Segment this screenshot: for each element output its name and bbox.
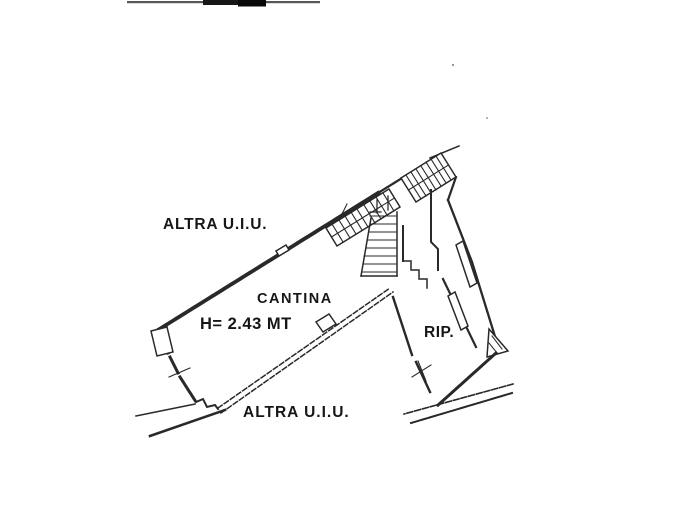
rip-walls <box>393 200 513 423</box>
stairs-upper <box>401 153 456 202</box>
cropped-header-artifact <box>127 0 320 7</box>
scan-specks <box>452 64 488 119</box>
room-label-cantina: CANTINA <box>257 291 333 307</box>
ceiling-height-note: H= 2.43 MT <box>200 315 292 334</box>
floorplan-drawing <box>0 0 692 518</box>
area-label-altra-uiu-top: ALTRA U.I.U. <box>163 216 267 234</box>
scanned-floorplan-page: ALTRA U.I.U. CANTINA H= 2.43 MT RIP. ALT… <box>0 0 692 518</box>
room-label-rip: RIP. <box>424 324 454 342</box>
area-label-altra-uiu-bottom: ALTRA U.I.U. <box>243 404 350 422</box>
stair-hall-walls <box>403 190 438 288</box>
